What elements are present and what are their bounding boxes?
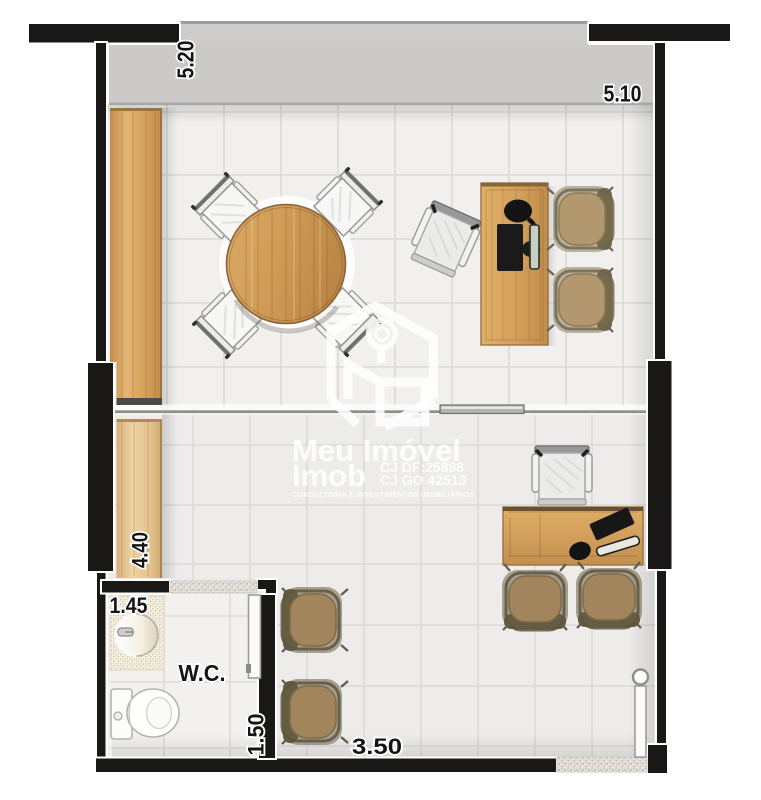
svg-text:5.20: 5.20: [173, 41, 199, 79]
svg-text:Imob: Imob: [292, 458, 366, 493]
svg-text:5.10: 5.10: [604, 81, 642, 107]
svg-text:1.50: 1.50: [244, 714, 269, 756]
svg-text:CONSULTORIA E INVESTIMENTOS IM: CONSULTORIA E INVESTIMENTOS IMOBILIÁRIOS: [292, 490, 474, 499]
svg-text:3.50: 3.50: [352, 734, 402, 759]
svg-text:CJ GO 42513: CJ GO 42513: [380, 472, 467, 488]
svg-text:W.C.: W.C.: [179, 660, 226, 686]
svg-text:4.40: 4.40: [128, 532, 153, 568]
svg-text:1.45: 1.45: [110, 593, 148, 618]
